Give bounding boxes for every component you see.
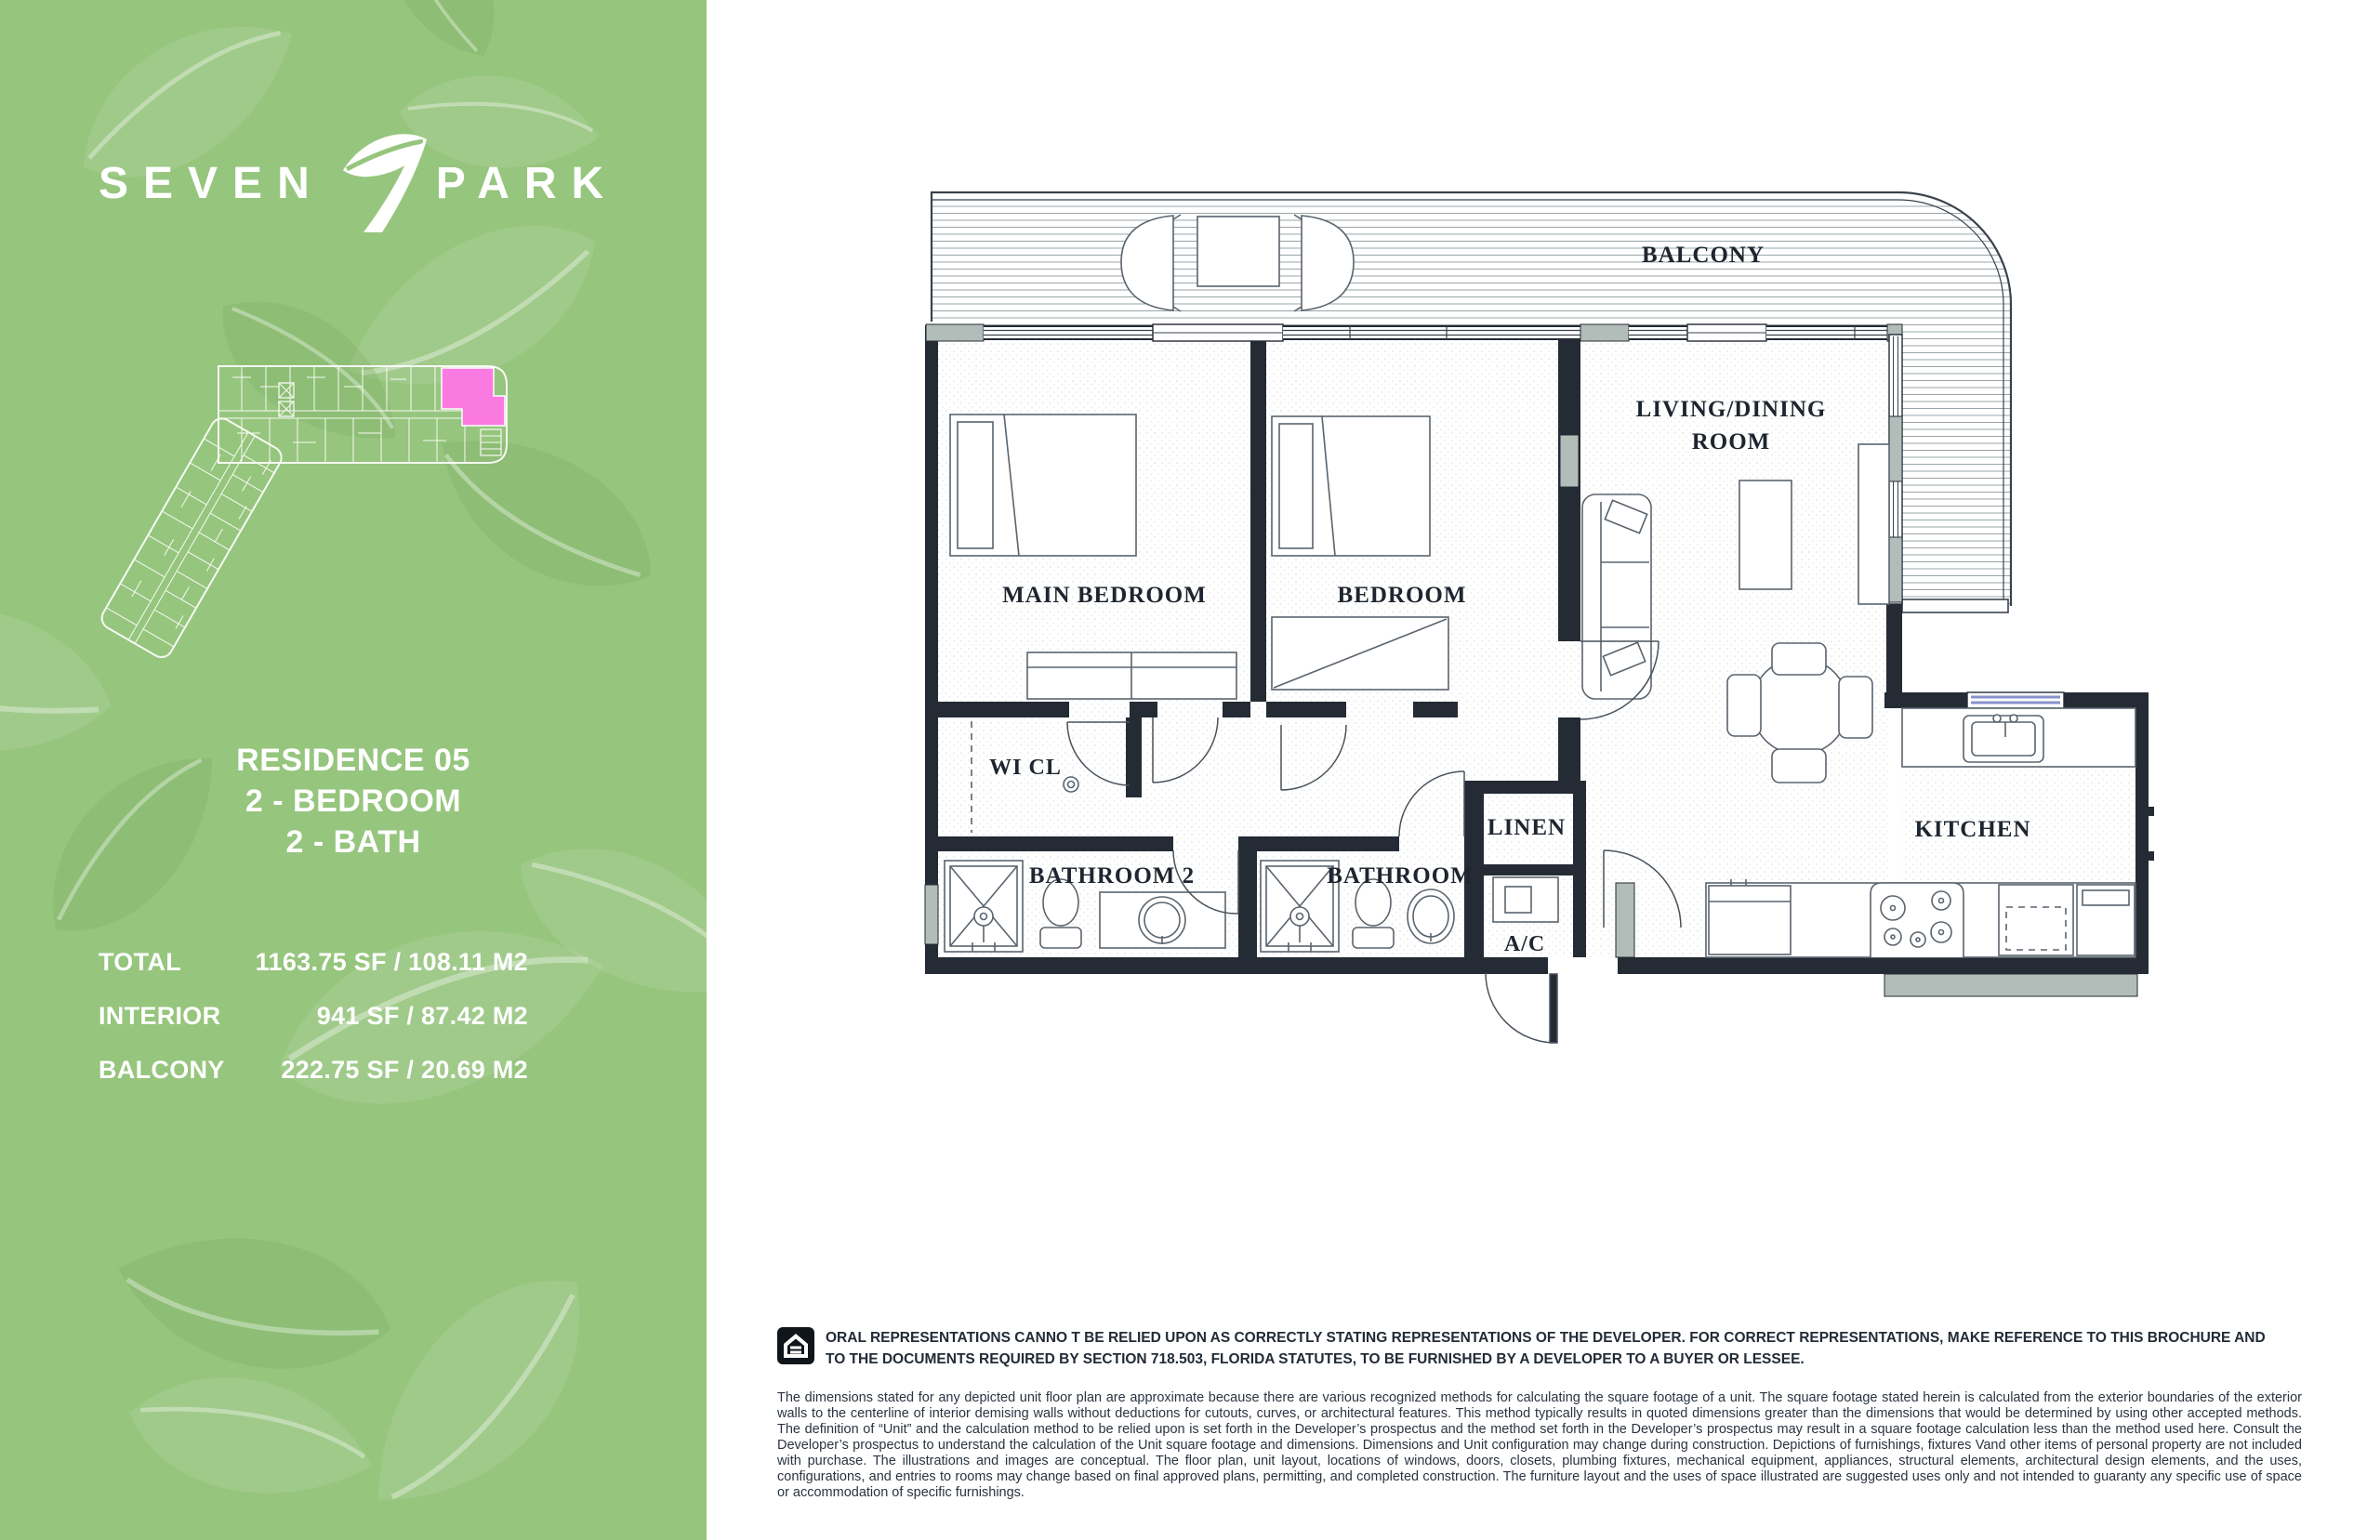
legal-disclaimer: ORAL REPRESENTATIONS CANNO T BE RELIED U… — [777, 1327, 2302, 1501]
label-wicl: WI CL — [989, 756, 1062, 780]
kitchen-cabinet-sink — [1709, 886, 1791, 954]
label-balcony: BALCONY — [1642, 243, 1765, 268]
label-main-bedroom: MAIN BEDROOM — [1002, 583, 1207, 608]
label-linen: LINEN — [1487, 815, 1566, 840]
entry-door-swing — [1486, 973, 1555, 1043]
label-bathroom: BATHROOM — [1327, 863, 1474, 888]
entry-door-leaf — [1550, 974, 1557, 1043]
disclaimer-notice: ORAL REPRESENTATIONS CANNO T BE RELIED U… — [826, 1327, 2276, 1370]
balcony-table — [1197, 217, 1279, 286]
dining-chair — [1772, 643, 1826, 675]
balcony-sill — [1902, 599, 2008, 612]
dining-chair — [1839, 677, 1872, 738]
coffee-table — [1739, 480, 1792, 589]
label-bathroom2: BATHROOM 2 — [1029, 863, 1195, 888]
label-kitchen: KITCHEN — [1914, 817, 2030, 842]
floorplan-drawing: BALCONY MAIN BEDROOM BEDROOM LIVING/DINI… — [0, 0, 2380, 1540]
disclaimer-body: The dimensions stated for any depicted u… — [777, 1390, 2302, 1501]
kitchen-window — [1967, 692, 2064, 708]
label-bedroom: BEDROOM — [1338, 583, 1467, 608]
label-ac: A/C — [1504, 932, 1545, 956]
dining-chair — [1727, 675, 1761, 736]
dining-chair — [1772, 749, 1826, 783]
label-living-dining-1: LIVING/DINING — [1636, 397, 1827, 422]
equal-housing-icon — [777, 1327, 814, 1364]
label-living-dining-2: ROOM — [1692, 429, 1771, 454]
tv-console — [1858, 444, 1889, 604]
